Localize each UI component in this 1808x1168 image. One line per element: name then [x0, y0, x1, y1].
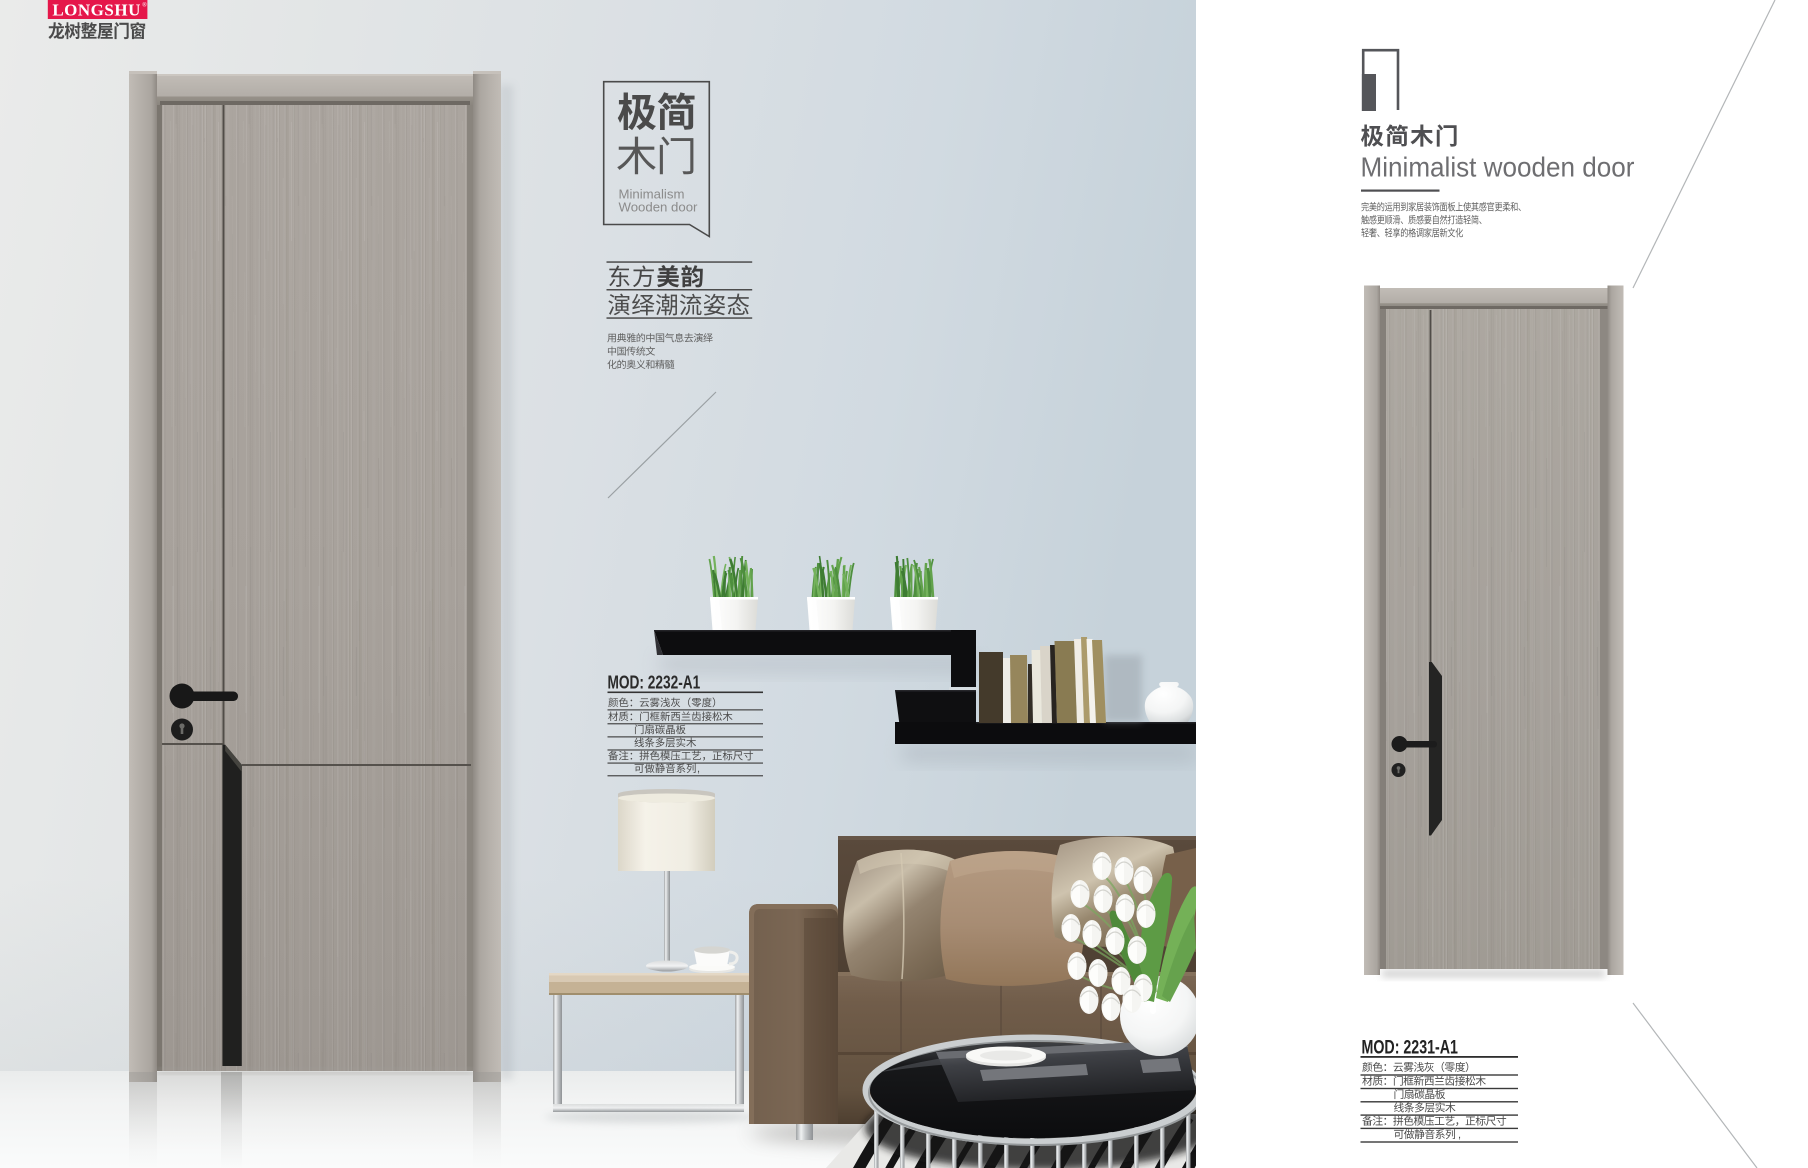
- svg-text:®: ®: [142, 2, 147, 9]
- svg-text:,: ,: [1458, 1129, 1461, 1141]
- svg-text:MOD: 2231-A1: MOD: 2231-A1: [1362, 1036, 1459, 1058]
- svg-text:LONGSHU: LONGSHU: [52, 0, 141, 19]
- svg-text:,: ,: [697, 763, 700, 775]
- svg-text:MOD: 2232-A1: MOD: 2232-A1: [608, 673, 701, 693]
- svg-text:Wooden door: Wooden door: [619, 200, 699, 215]
- svg-text:Minimalist wooden door: Minimalist wooden door: [1361, 152, 1635, 183]
